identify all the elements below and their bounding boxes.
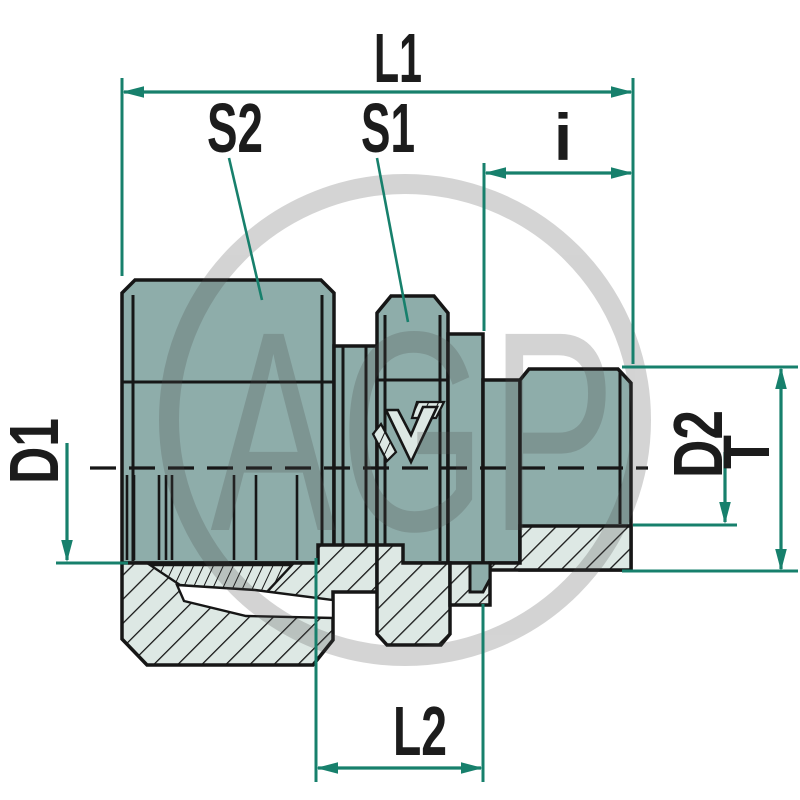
drawing-canvas: AGP [0,0,800,800]
fitting-drawing: AGP [0,0,800,800]
label-l2: L2 [393,692,447,770]
watermark-text: AGP [210,273,619,592]
label-t: T [709,435,783,469]
label-l1: L1 [374,19,422,97]
label-d1: D1 [0,418,73,484]
label-i: i [554,100,572,174]
label-s1: S1 [361,89,415,167]
label-s2: S2 [207,89,263,167]
